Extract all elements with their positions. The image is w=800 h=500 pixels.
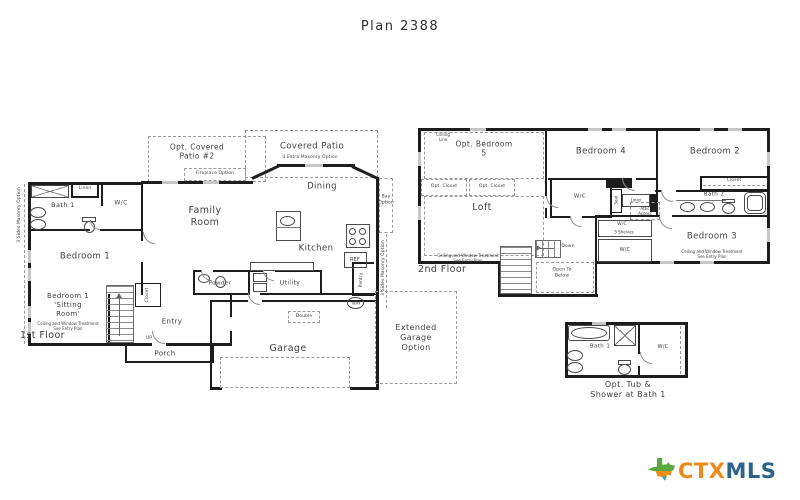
wall: [672, 215, 768, 217]
wall: [418, 128, 421, 264]
window: [418, 152, 421, 166]
door-arc: [659, 216, 672, 229]
door-arc: [248, 293, 260, 305]
porch-wall: [212, 345, 214, 362]
wall: [71, 196, 99, 198]
sink-fixture: [280, 216, 295, 226]
window: [28, 268, 31, 281]
wall: [71, 182, 73, 197]
window: [470, 128, 486, 131]
window: [612, 128, 626, 131]
stairs-arrow-head: [116, 290, 122, 298]
room-label-bath1: Bath 1: [51, 201, 75, 209]
shelves-label: 5 Shelves: [614, 230, 633, 235]
garage-door-outline: [220, 357, 350, 388]
wall: [193, 270, 195, 295]
ceiling-line-note: Ceiling Line: [436, 132, 450, 142]
room-label-bath2: Bath 2: [704, 192, 724, 199]
logo-text-mls: MLS: [725, 459, 776, 483]
wall: [685, 322, 688, 378]
masonry-dash-line: [24, 184, 25, 344]
porch-wall: [125, 361, 214, 363]
sink-fixture: [680, 202, 695, 212]
closet-label: Closet: [145, 288, 151, 303]
door-arc: [640, 352, 652, 364]
room-label-bath1-detail: Bath 1: [590, 344, 610, 351]
masonry-option-note: 4 Extra Masonry Option: [282, 155, 337, 161]
wall: [320, 270, 322, 295]
seat-label: Seat: [614, 195, 619, 204]
counter-line: [676, 200, 726, 201]
door-arc: [570, 216, 581, 227]
toilet-fixture: [618, 364, 631, 375]
ceiling-note: Ceiling and Window Treatment See Entry P…: [681, 249, 742, 259]
burner-icon: [359, 228, 366, 235]
floor1-label: 1st Floor: [20, 330, 65, 342]
wall: [248, 270, 250, 295]
room-label-porch: Porch: [154, 350, 175, 359]
room-label-loft: Loft: [472, 202, 491, 214]
door-arc: [661, 190, 673, 202]
floor-plan-page: Plan 2388 Opt. Covered Patio #2 Fireplac…: [0, 0, 800, 500]
window: [767, 152, 770, 166]
burner-icon: [349, 228, 356, 235]
wall: [101, 182, 103, 206]
room-label-bedroom4: Bedroom 4: [576, 147, 626, 158]
wall: [100, 229, 143, 231]
burner-icon: [349, 238, 356, 245]
open-below-outline: [536, 262, 594, 293]
window: [162, 181, 178, 184]
wall: [638, 322, 640, 354]
room-label-covered-patio: Covered Patio: [280, 142, 344, 153]
burner-icon: [359, 238, 366, 245]
tub-fixture: [571, 327, 607, 339]
window: [305, 164, 323, 167]
water-heater-label: W/H: [352, 301, 360, 306]
wall: [767, 128, 770, 264]
logo-text-ctx: CTX: [678, 459, 725, 483]
texas-logo-icon: [648, 458, 675, 484]
room-label-opt-bedroom5: Opt. Bedroom 5: [455, 140, 512, 159]
wall: [141, 181, 253, 184]
tub-fixture: [747, 195, 763, 211]
up-label: UP: [146, 336, 152, 342]
page-title: Plan 2388: [361, 19, 439, 35]
closet-wall: [700, 176, 702, 190]
room-label-wc-detail: W/C: [658, 344, 669, 350]
ctxmls-logo: CTX MLS: [648, 458, 776, 484]
wall: [193, 293, 248, 295]
toilet-fixture: [215, 276, 226, 288]
wall: [545, 208, 547, 218]
sink-fixture: [567, 350, 583, 361]
shower-fixture: [614, 325, 636, 346]
dryer-fixture: [253, 283, 267, 292]
room-label-bedroom1: Bedroom 1: [60, 252, 110, 263]
attic-access-label: Attic Access: [638, 206, 652, 216]
wall: [350, 387, 379, 390]
sink-fixture: [30, 219, 46, 230]
masonry-note-right: 3 Sides Masonry Option: [381, 240, 387, 296]
window: [700, 128, 714, 131]
bay-option-label: Bay Option: [378, 194, 394, 205]
floor2-label: 2nd Floor: [418, 264, 466, 276]
door-arc: [622, 178, 635, 191]
kitchen-island: [250, 262, 314, 271]
wall: [108, 343, 152, 346]
wall: [595, 218, 597, 297]
room-label-entry: Entry: [162, 318, 183, 327]
wall: [550, 216, 570, 218]
ceiling-note: Ceiling and Window Treatment See Entry P…: [437, 253, 498, 263]
door-arc: [546, 196, 558, 208]
room-label-sitting-room: Bedroom 1 'Sitting Room': [47, 292, 89, 318]
room-label-wc: W/C: [114, 199, 127, 207]
room-label-wc: W/C: [574, 194, 586, 201]
sink-fixture: [30, 207, 46, 218]
wall: [230, 293, 232, 317]
window: [728, 128, 742, 131]
room-label-opt-covered-patio: Opt. Covered Patio #2: [170, 143, 224, 162]
room-label-linen: Linen: [79, 186, 92, 192]
wall: [565, 375, 688, 378]
shower-fixture: [31, 185, 69, 198]
room-label-wc: W/C: [617, 222, 626, 228]
wall: [656, 128, 658, 180]
masonry-note-left: 3 Sides Masonry Option: [17, 187, 23, 243]
double-door-label: Double: [296, 314, 313, 320]
room-label-pantry: Pantry: [359, 273, 365, 288]
wall: [210, 300, 248, 302]
wall: [636, 178, 658, 180]
opt-closet-label: Opt. Closet: [431, 184, 457, 190]
bath-option-caption: Opt. Tub & Shower at Bath 1: [590, 380, 666, 400]
room-label-bedroom3: Bedroom 3: [687, 232, 737, 243]
window: [28, 306, 31, 318]
ref-label: REF: [350, 257, 360, 263]
room-label-garage: Garage: [269, 343, 306, 355]
down-label: Down: [561, 244, 574, 250]
opt-closet-label: Opt. Closet: [479, 184, 505, 190]
closet-shelf-line: [703, 185, 765, 186]
room-label-family-room: Family Room: [189, 205, 222, 229]
wall: [166, 343, 232, 346]
stairs-second-floor: [500, 246, 532, 294]
window: [28, 250, 31, 263]
room-label-bedroom2: Bedroom 2: [690, 147, 740, 158]
sink-fixture: [567, 362, 583, 373]
window: [418, 206, 421, 220]
wall: [638, 366, 640, 378]
door-arc: [143, 232, 155, 244]
room-label-wc: W/C: [620, 247, 631, 253]
stairs-arrow: [119, 296, 120, 336]
window: [203, 181, 219, 184]
wall: [498, 294, 598, 297]
door-arc: [152, 331, 165, 344]
room-label-closet: Closet: [727, 178, 742, 184]
toilet-fixture: [722, 203, 735, 214]
window: [767, 228, 770, 242]
pantry-wall: [352, 294, 374, 296]
sink-fixture: [700, 202, 715, 212]
room-label-utility: Utility: [280, 279, 300, 287]
fireplace-option-label: Fireplace Option: [196, 171, 234, 177]
window: [592, 322, 606, 325]
wall: [230, 331, 232, 346]
stairs-arrow-head: [536, 245, 544, 251]
wall: [28, 343, 111, 346]
closet-shelf-line: [680, 326, 681, 374]
room-label-extended-garage: Extended Garage Option: [395, 323, 436, 353]
wall: [97, 182, 99, 197]
window: [700, 261, 714, 264]
room-label-dining: Dining: [307, 182, 337, 193]
counter-line: [276, 227, 301, 228]
porch-wall: [125, 345, 127, 362]
window: [588, 128, 602, 131]
wall: [545, 128, 547, 196]
window: [660, 261, 674, 264]
room-label-kitchen: Kitchen: [299, 244, 334, 255]
